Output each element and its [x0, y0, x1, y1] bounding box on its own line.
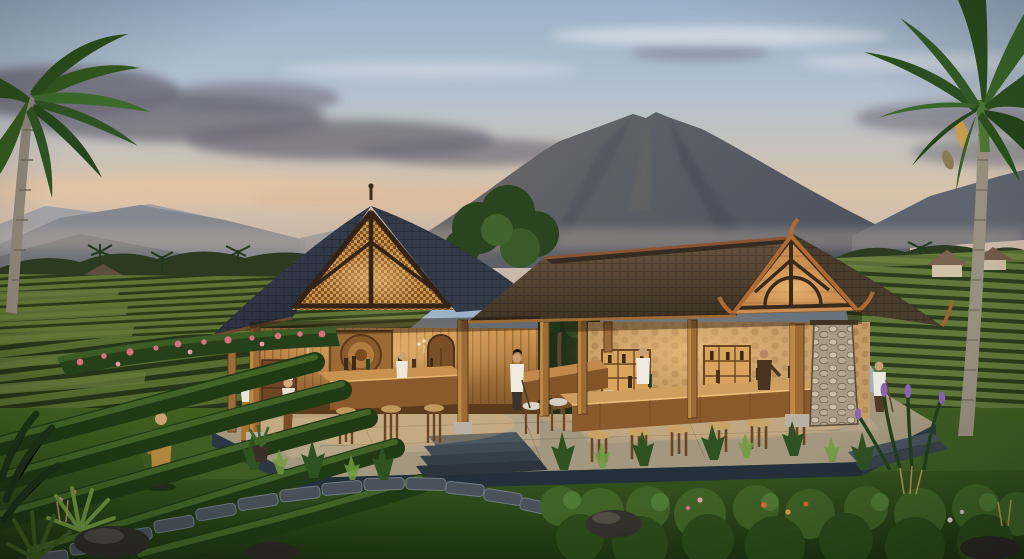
vignette: [0, 0, 1024, 559]
scene-render: [0, 0, 1024, 559]
scene-svg: [0, 0, 1024, 559]
